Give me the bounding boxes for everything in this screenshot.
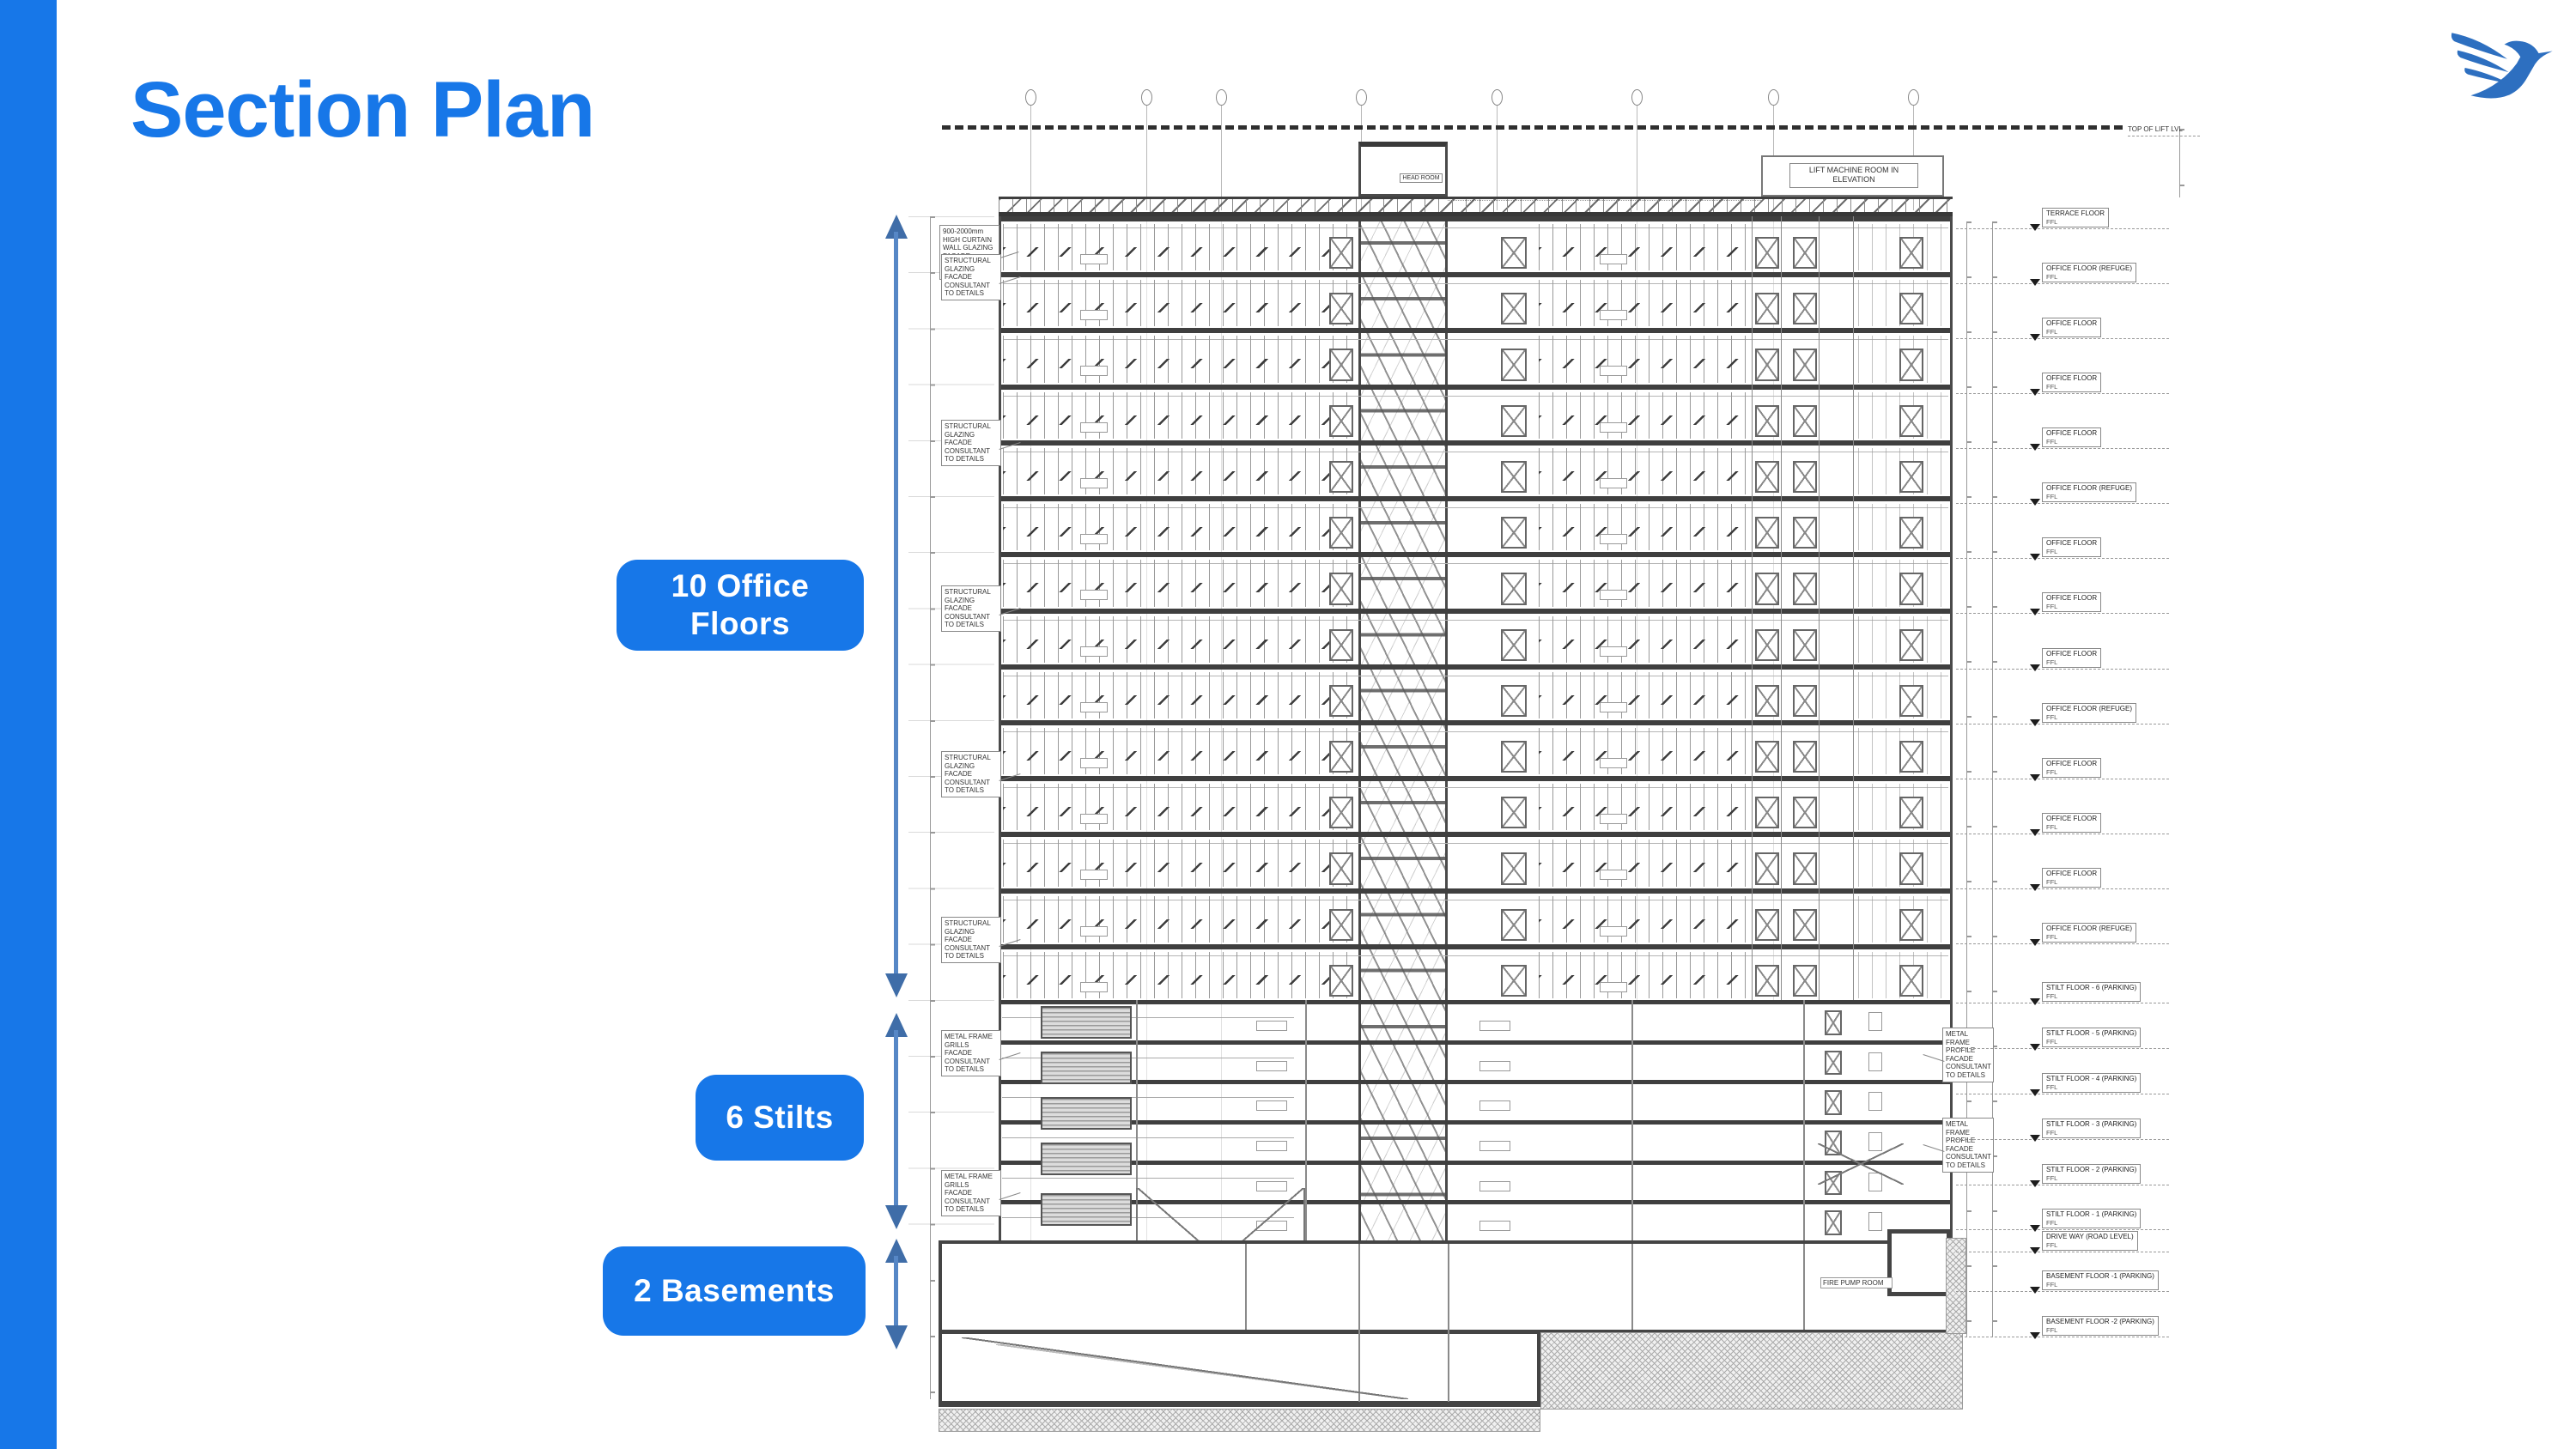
level-tag-box: OFFICE FLOOR (REFUGE) FFL (2042, 703, 2136, 723)
lift-door (1899, 629, 1923, 661)
level-tag-ffl: FFL (2046, 768, 2097, 776)
window-ticks (1539, 919, 1748, 929)
parking-label-box (1479, 1141, 1510, 1151)
facade-note-text: STRUCTURAL GLAZING FACADE CONSULTANT TO … (945, 422, 990, 463)
lift-door (1501, 237, 1527, 269)
window-ticks (1539, 751, 1748, 761)
lift-door (1793, 349, 1817, 380)
level-marker-icon (2030, 444, 2040, 451)
level-dashed-line (1956, 1048, 2169, 1049)
level-tag-name: STILT FLOOR - 3 (PARKING) (2046, 1120, 2136, 1129)
lift-door (1899, 965, 1923, 997)
lift-door (1501, 685, 1527, 717)
window-ticks (1003, 751, 1351, 761)
level-tag-box: OFFICE FLOOR FFL (2042, 592, 2101, 612)
level-tag-ffl: FFL (2046, 383, 2097, 391)
facade-wall (1950, 216, 1953, 1240)
level-tag-ffl: FFL (2046, 1326, 2154, 1334)
level-tag-ffl: FFL (2046, 1129, 2136, 1137)
level-tag-box: OFFICE FLOOR FFL (2042, 758, 2101, 778)
lift-door (1793, 797, 1817, 828)
lift-door (1329, 741, 1353, 773)
level-tag-ffl: FFL (2046, 1281, 2154, 1288)
callout-pill: 10 Office Floors (617, 560, 864, 651)
lift-door (1755, 965, 1779, 997)
level-marker-icon (2030, 1247, 2040, 1254)
level-marker-icon (2030, 609, 2040, 615)
floor-level-tag: OFFICE FLOOR FFL (1956, 868, 2169, 895)
level-dashed-line (1956, 1094, 2169, 1094)
level-tag-name: OFFICE FLOOR (2046, 870, 2097, 878)
lift-door (1329, 909, 1353, 941)
lift-door (1329, 349, 1353, 380)
level-dashed-line (1956, 613, 2169, 614)
level-marker-icon (2030, 1332, 2040, 1339)
level-tag-box: OFFICE FLOOR FFL (2042, 427, 2101, 447)
window-ticks (1539, 807, 1748, 816)
level-marker-icon (2030, 1287, 2040, 1294)
dimension-arrow (885, 1239, 908, 1349)
callout-pill: 2 Basements (603, 1246, 866, 1336)
room-label-box (1080, 366, 1108, 376)
shaft-wall (1819, 216, 1820, 1000)
parking-label-box (1479, 1021, 1510, 1031)
office-floor-row (999, 888, 1953, 944)
floor-level-tag: BASEMENT FLOOR -2 (PARKING) FFL (1956, 1316, 2169, 1343)
floor-level-tag: TERRACE FLOOR FFL (1956, 208, 2169, 235)
floor-level-tag: STILT FLOOR - 5 (PARKING) FFL (1956, 1028, 2169, 1055)
level-marker-icon (2030, 829, 2040, 836)
lift-door (1793, 517, 1817, 549)
floor-level-dashes (908, 216, 994, 1240)
grid-bubble-line (1497, 106, 1498, 210)
column (1803, 1000, 1805, 1240)
facade-note: STRUCTURAL GLAZING FACADE CONSULTANT TO … (941, 751, 1001, 797)
lift-door (1329, 573, 1353, 604)
parking-label-box (1256, 1141, 1287, 1151)
level-dashed-line (1956, 888, 2169, 889)
basement-wall (1448, 1244, 1449, 1402)
floor-level-tag: STILT FLOOR - 6 (PARKING) FFL (1956, 982, 2169, 1009)
room-label-box (1600, 646, 1627, 657)
arrow-line (894, 1256, 898, 1332)
room-label-box (1080, 814, 1108, 824)
window-ticks (1003, 303, 1351, 312)
lift-door (1501, 405, 1527, 437)
window-ticks (1003, 975, 1351, 985)
lift-door (1793, 573, 1817, 604)
louver-grill-box (1041, 1006, 1132, 1039)
arrow-line (894, 232, 898, 980)
office-floor-row (999, 832, 1953, 888)
office-floor-row (999, 440, 1953, 496)
lift-door (1329, 685, 1353, 717)
level-marker-icon (2030, 1180, 2040, 1187)
ground-hatch (1540, 1332, 1963, 1410)
grid-bubble-icon (1356, 89, 1367, 106)
lift-door (1793, 741, 1817, 773)
window-ticks (1003, 919, 1351, 929)
level-tag-ffl: FFL (2046, 548, 2097, 555)
lift-door (1329, 293, 1353, 324)
facade-note-text: STRUCTURAL GLAZING FACADE CONSULTANT TO … (945, 919, 990, 960)
level-dashed-line (1956, 448, 2169, 449)
grid-bubble-icon (1768, 89, 1779, 106)
window-ticks (1003, 415, 1351, 425)
lift-door (1899, 349, 1923, 380)
lift-door (1793, 237, 1817, 269)
room-label-box (1600, 366, 1627, 376)
window-ticks (1003, 471, 1351, 481)
level-tag-name: STILT FLOOR - 4 (PARKING) (2046, 1075, 2136, 1083)
window-ticks (1539, 471, 1748, 481)
level-tag-ffl: FFL (2046, 1219, 2136, 1227)
column (1631, 1000, 1633, 1240)
floor-level-tag: OFFICE FLOOR (REFUGE) FFL (1956, 482, 2169, 510)
shaft-wall (1781, 216, 1782, 1000)
room-label-box (1600, 702, 1627, 712)
level-marker-icon (2030, 1089, 2040, 1096)
level-dashed-line (1956, 779, 2169, 779)
window-ticks (1003, 247, 1351, 257)
level-marker-icon (2030, 224, 2040, 231)
office-floor-row (999, 944, 1953, 1000)
level-dashed-line (1956, 1139, 2169, 1140)
dimension-arrow (885, 215, 908, 997)
lift-door (1793, 852, 1817, 884)
shaft-wall (1853, 216, 1854, 1000)
level-dashed-line (1956, 943, 2169, 944)
level-marker-icon (2030, 939, 2040, 946)
room-label-box (1080, 926, 1108, 937)
lift-door (1793, 405, 1817, 437)
roof-parapet-band (999, 197, 1953, 216)
office-floor-row (999, 609, 1953, 664)
floor-level-tag: OFFICE FLOOR FFL (1956, 592, 2169, 620)
level-marker-icon (2030, 1135, 2040, 1142)
room-label-box (1600, 758, 1627, 768)
office-floor-row (999, 720, 1953, 776)
office-floor-row (999, 272, 1953, 328)
level-tag-ffl: FFL (2046, 1038, 2136, 1046)
accent-bar (0, 0, 57, 1449)
lift-lobby-box (1868, 1012, 1882, 1031)
lift-door (1755, 685, 1779, 717)
parking-label-box (1256, 1021, 1287, 1031)
level-tag-box: STILT FLOOR - 5 (PARKING) FFL (2042, 1028, 2141, 1047)
arrow-down-icon (885, 1205, 908, 1229)
lift-door (1501, 461, 1527, 493)
lift-door (1755, 461, 1779, 493)
floor-level-tag: BASEMENT FLOOR -1 (PARKING) FFL (1956, 1270, 2169, 1298)
floor-level-tag: STILT FLOOR - 3 (PARKING) FFL (1956, 1119, 2169, 1146)
window-ticks (1539, 303, 1748, 312)
lift-door (1329, 237, 1353, 269)
level-tag-box: STILT FLOOR - 1 (PARKING) FFL (2042, 1209, 2141, 1228)
office-floor-row (999, 776, 1953, 832)
room-label-box (1080, 870, 1108, 880)
level-dashed-line (1956, 1003, 2169, 1003)
room-label-box (1080, 590, 1108, 600)
level-tag-box: OFFICE FLOOR (REFUGE) FFL (2042, 482, 2136, 502)
level-dashed-line (1956, 558, 2169, 559)
level-tag-name: OFFICE FLOOR (2046, 594, 2097, 603)
floor-level-tag: OFFICE FLOOR FFL (1956, 758, 2169, 785)
facade-note: STRUCTURAL GLAZING FACADE CONSULTANT TO … (941, 585, 1001, 632)
level-tag-name: TERRACE FLOOR (2046, 209, 2105, 218)
lift-door (1501, 293, 1527, 324)
dimension-arrow (885, 1013, 908, 1229)
grid-bubble-icon (1908, 89, 1919, 106)
level-tag-name: STILT FLOOR - 2 (PARKING) (2046, 1166, 2136, 1174)
lift-door (1899, 852, 1923, 884)
parking-label-box (1479, 1061, 1510, 1071)
level-tag-name: OFFICE FLOOR (2046, 374, 2097, 383)
level-marker-icon (2030, 998, 2040, 1005)
facade-note-text: METAL FRAME GRILLS FACADE CONSULTANT TO … (945, 1173, 993, 1213)
level-tag-ffl: FFL (2046, 438, 2097, 446)
level-tag-ffl: FFL (2046, 713, 2132, 721)
basement-ramp-line (996, 1344, 1408, 1399)
level-marker-icon (2030, 664, 2040, 671)
level-tag-name: OFFICE FLOOR (REFUGE) (2046, 484, 2132, 493)
level-tag-name: OFFICE FLOOR (2046, 650, 2097, 658)
lift-lobby-box (1868, 1212, 1882, 1231)
level-tag-name: BASEMENT FLOOR -2 (PARKING) (2046, 1318, 2154, 1326)
room-label-box (1600, 590, 1627, 600)
level-tag-ffl: FFL (2046, 218, 2105, 226)
level-tag-name: OFFICE FLOOR (REFUGE) (2046, 925, 2132, 933)
level-tag-name: OFFICE FLOOR (2046, 760, 2097, 768)
room-label-box (1080, 646, 1108, 657)
floor-level-tag: OFFICE FLOOR FFL (1956, 648, 2169, 676)
parking-label-box (1479, 1181, 1510, 1191)
office-floor-row (999, 552, 1953, 608)
level-tag-ffl: FFL (2046, 273, 2132, 281)
basement-wall (1245, 1244, 1247, 1330)
room-label-box (1600, 926, 1627, 937)
level-tag-ffl: FFL (2046, 328, 2097, 336)
lift-door (1329, 797, 1353, 828)
floor-level-tag: OFFICE FLOOR FFL (1956, 318, 2169, 345)
basement-wall (1631, 1244, 1633, 1330)
top-of-lift-note: TOP OF LIFT LVL (2128, 125, 2200, 136)
level-tag-name: STILT FLOOR - 5 (PARKING) (2046, 1029, 2136, 1038)
floor-level-tag: DRIVE WAY (ROAD LEVEL) FFL (1956, 1231, 2169, 1258)
driveway-line (1002, 1178, 1294, 1179)
grid-bubble (1210, 89, 1232, 210)
cross-brace (1818, 1143, 1904, 1185)
grid-bubble-line (1221, 106, 1222, 210)
room-label-box (1600, 534, 1627, 544)
level-dashed-line (1956, 1337, 2169, 1337)
office-floor-row (999, 328, 1953, 384)
window-ticks (1003, 695, 1351, 705)
grid-bubble-line (1146, 106, 1147, 210)
window-ticks (1539, 975, 1748, 985)
floor-level-tag: OFFICE FLOOR FFL (1956, 427, 2169, 455)
lift-door (1755, 852, 1779, 884)
window-ticks (1539, 359, 1748, 368)
level-tag-ffl: FFL (2046, 603, 2097, 610)
level-tag-ffl: FFL (2046, 823, 2097, 831)
dimension-string (930, 216, 935, 1399)
lift-door (1329, 965, 1353, 997)
level-dashed-line (1956, 393, 2169, 394)
level-tag-box: STILT FLOOR - 3 (PARKING) FFL (2042, 1119, 2141, 1138)
level-tag-name: OFFICE FLOOR (2046, 539, 2097, 548)
grid-bubble-icon (1492, 89, 1503, 106)
level-dashed-line (1956, 1185, 2169, 1185)
level-tag-ffl: FFL (2046, 1241, 2134, 1249)
level-tag-box: OFFICE FLOOR FFL (2042, 813, 2101, 833)
level-tag-box: BASEMENT FLOOR -1 (PARKING) FFL (2042, 1270, 2159, 1290)
lift-door (1899, 685, 1923, 717)
lift-door (1501, 965, 1527, 997)
level-marker-icon (2030, 389, 2040, 396)
level-tag-box: OFFICE FLOOR (REFUGE) FFL (2042, 263, 2136, 282)
facade-note-text: STRUCTURAL GLAZING FACADE CONSULTANT TO … (945, 754, 990, 794)
lift-door (1755, 517, 1779, 549)
room-label-box (1600, 982, 1627, 992)
floor-slab (999, 1120, 1953, 1125)
lift-door (1899, 517, 1923, 549)
office-floor-row (999, 216, 1953, 272)
lift-door (1755, 405, 1779, 437)
level-tag-name: BASEMENT FLOOR -1 (PARKING) (2046, 1272, 2154, 1281)
lift-door (1825, 1090, 1842, 1115)
lift-door (1755, 237, 1779, 269)
window-ticks (1539, 863, 1748, 872)
level-dashed-line (1956, 1291, 2169, 1292)
ground-hatch (939, 1409, 1540, 1432)
grid-bubble-icon (1025, 89, 1036, 106)
lift-door (1899, 237, 1923, 269)
lift-door (1899, 405, 1923, 437)
level-tag-ffl: FFL (2046, 493, 2132, 500)
window-ticks (1539, 247, 1748, 257)
louver-grill-box (1041, 1143, 1132, 1175)
office-floor-row (999, 496, 1953, 552)
level-tag-name: OFFICE FLOOR (REFUGE) (2046, 705, 2132, 713)
lift-door (1501, 852, 1527, 884)
level-tag-box: OFFICE FLOOR FFL (2042, 648, 2101, 668)
lift-door (1329, 517, 1353, 549)
level-marker-icon (2030, 884, 2040, 891)
lift-door (1825, 1010, 1842, 1035)
facade-note: METAL FRAME GRILLS FACADE CONSULTANT TO … (941, 1030, 1001, 1076)
room-label-box (1600, 814, 1627, 824)
level-marker-icon (2030, 719, 2040, 726)
level-marker-icon (2030, 499, 2040, 506)
floor-slab (999, 272, 1953, 277)
sump-tank-box (1887, 1229, 1951, 1296)
floor-slab (999, 1000, 1953, 1004)
room-label-box (1600, 870, 1627, 880)
lift-door (1899, 573, 1923, 604)
room-label-box (1080, 534, 1108, 544)
room-label-box (1600, 310, 1627, 320)
level-dashed-line (1956, 1229, 2169, 1230)
bird-logo-icon (2444, 24, 2561, 112)
lift-door (1793, 293, 1817, 324)
facade-note: STRUCTURAL GLAZING FACADE CONSULTANT TO … (941, 254, 1001, 300)
parking-label-box (1479, 1221, 1510, 1231)
stair-headroom-tower (1358, 142, 1448, 197)
facade-note-text: METAL FRAME GRILLS FACADE CONSULTANT TO … (945, 1033, 993, 1073)
floor-level-tag: OFFICE FLOOR FFL (1956, 373, 2169, 400)
floor-level-tag: OFFICE FLOOR FFL (1956, 813, 2169, 840)
lift-door (1329, 461, 1353, 493)
level-tag-ffl: FFL (2046, 658, 2097, 666)
level-dashed-line (1956, 283, 2169, 284)
callout-pill-label: 6 Stilts (726, 1099, 833, 1137)
level-tag-box: OFFICE FLOOR (REFUGE) FFL (2042, 923, 2136, 943)
floor-slab (999, 609, 1953, 614)
grid-bubble (1625, 89, 1648, 210)
window-ticks (1539, 527, 1748, 537)
level-tag-ffl: FFL (2046, 933, 2132, 941)
basement-wall (1803, 1244, 1805, 1330)
level-tag-box: OFFICE FLOOR FFL (2042, 373, 2101, 392)
lift-door (1825, 1210, 1842, 1235)
floor-level-tag: OFFICE FLOOR (REFUGE) FFL (1956, 703, 2169, 731)
lift-door (1501, 517, 1527, 549)
floor-slab (999, 552, 1953, 557)
lift-machine-room-label: LIFT MACHINE ROOM IN ELEVATION (1789, 163, 1918, 188)
facade-note-text: STRUCTURAL GLAZING FACADE CONSULTANT TO … (945, 257, 990, 297)
level-tag-box: STILT FLOOR - 6 (PARKING) FFL (2042, 982, 2141, 1002)
head-room-label: HEAD ROOM (1400, 173, 1443, 183)
callout-pill-label: 10 Office Floors (632, 567, 848, 642)
slide: { "slide": { "title": "Section Plan", "a… (0, 0, 2576, 1449)
louver-grill-box (1041, 1052, 1132, 1084)
level-tag-box: BASEMENT FLOOR -2 (PARKING) FFL (2042, 1316, 2159, 1336)
level-tag-name: OFFICE FLOOR (2046, 319, 2097, 328)
level-tag-box: TERRACE FLOOR FFL (2042, 208, 2109, 227)
level-tag-box: DRIVE WAY (ROAD LEVEL) FFL (2042, 1231, 2138, 1251)
facade-note-text: STRUCTURAL GLAZING FACADE CONSULTANT TO … (945, 588, 990, 628)
window-ticks (1539, 583, 1748, 592)
lift-lobby-box (1868, 1092, 1882, 1111)
floor-level-tag: OFFICE FLOOR (REFUGE) FFL (1956, 923, 2169, 950)
lift-door (1899, 909, 1923, 941)
column (1305, 1000, 1307, 1240)
room-label-box (1080, 422, 1108, 433)
level-tag-name: OFFICE FLOOR (2046, 815, 2097, 823)
driveway-line (1002, 1137, 1294, 1138)
level-tag-ffl: FFL (2046, 1083, 2136, 1091)
level-dashed-line (1956, 669, 2169, 670)
lift-lobby-box (1868, 1052, 1882, 1071)
facade-note: STRUCTURAL GLAZING FACADE CONSULTANT TO … (941, 420, 1001, 466)
room-label-box (1080, 478, 1108, 488)
level-tag-name: STILT FLOOR - 6 (PARKING) (2046, 984, 2136, 992)
floor-slab (999, 888, 1953, 894)
stilt-floor-row (999, 1000, 1953, 1040)
lift-door (1755, 741, 1779, 773)
window-ticks (1003, 527, 1351, 537)
level-tag-box: OFFICE FLOOR FFL (2042, 318, 2101, 337)
level-marker-icon (2030, 554, 2040, 561)
window-ticks (1539, 640, 1748, 649)
window-ticks (1003, 583, 1351, 592)
lift-door (1329, 852, 1353, 884)
floor-level-tag: STILT FLOOR - 2 (PARKING) FFL (1956, 1164, 2169, 1191)
grid-bubble-icon (1141, 89, 1152, 106)
floor-slab (999, 496, 1953, 501)
stilt-floor-row (999, 1120, 1953, 1161)
